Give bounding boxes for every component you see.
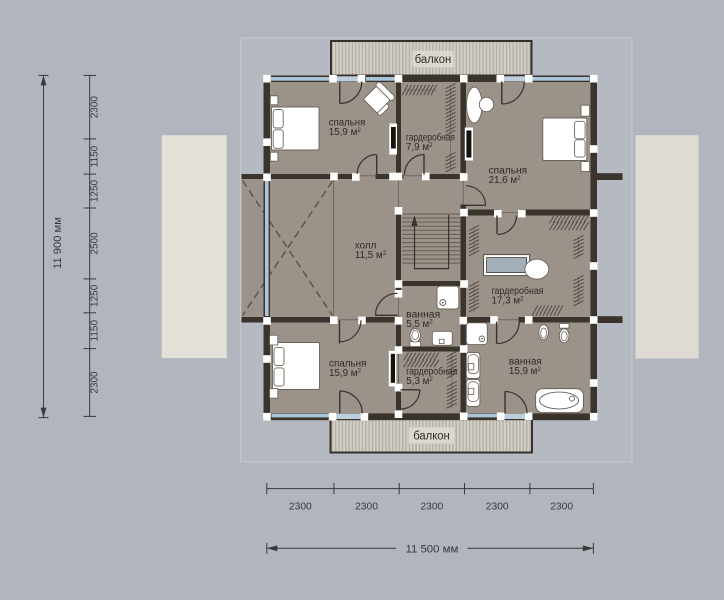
svg-text:балкон: балкон <box>413 430 450 442</box>
svg-text:7,9 м2: 7,9 м2 <box>406 142 433 153</box>
svg-text:15,9 м2: 15,9 м2 <box>509 366 542 377</box>
svg-text:2300: 2300 <box>550 502 573 513</box>
svg-text:15,9 м2: 15,9 м2 <box>329 127 362 138</box>
svg-text:5,3 м2: 5,3 м2 <box>406 376 433 387</box>
svg-text:5,5 м2: 5,5 м2 <box>406 319 433 330</box>
svg-text:2300: 2300 <box>355 502 378 513</box>
svg-text:17,3 м2: 17,3 м2 <box>492 296 525 307</box>
svg-text:2300: 2300 <box>90 96 101 119</box>
svg-text:2300: 2300 <box>90 371 101 394</box>
svg-text:2300: 2300 <box>486 502 509 513</box>
svg-text:1250: 1250 <box>90 179 101 202</box>
svg-text:1150: 1150 <box>90 145 101 167</box>
svg-text:15,9 м2: 15,9 м2 <box>329 368 362 379</box>
svg-text:21,6 м2: 21,6 м2 <box>489 175 522 186</box>
svg-text:11,5 м2: 11,5 м2 <box>355 250 387 261</box>
svg-text:11 900 мм: 11 900 мм <box>52 217 64 269</box>
svg-text:1250: 1250 <box>90 284 101 307</box>
svg-text:балкон: балкон <box>415 54 452 66</box>
svg-text:1150: 1150 <box>90 320 101 342</box>
svg-text:2500: 2500 <box>90 232 101 255</box>
svg-text:11 500 мм: 11 500 мм <box>405 543 458 555</box>
svg-text:2300: 2300 <box>289 502 312 513</box>
svg-text:2300: 2300 <box>420 502 443 513</box>
